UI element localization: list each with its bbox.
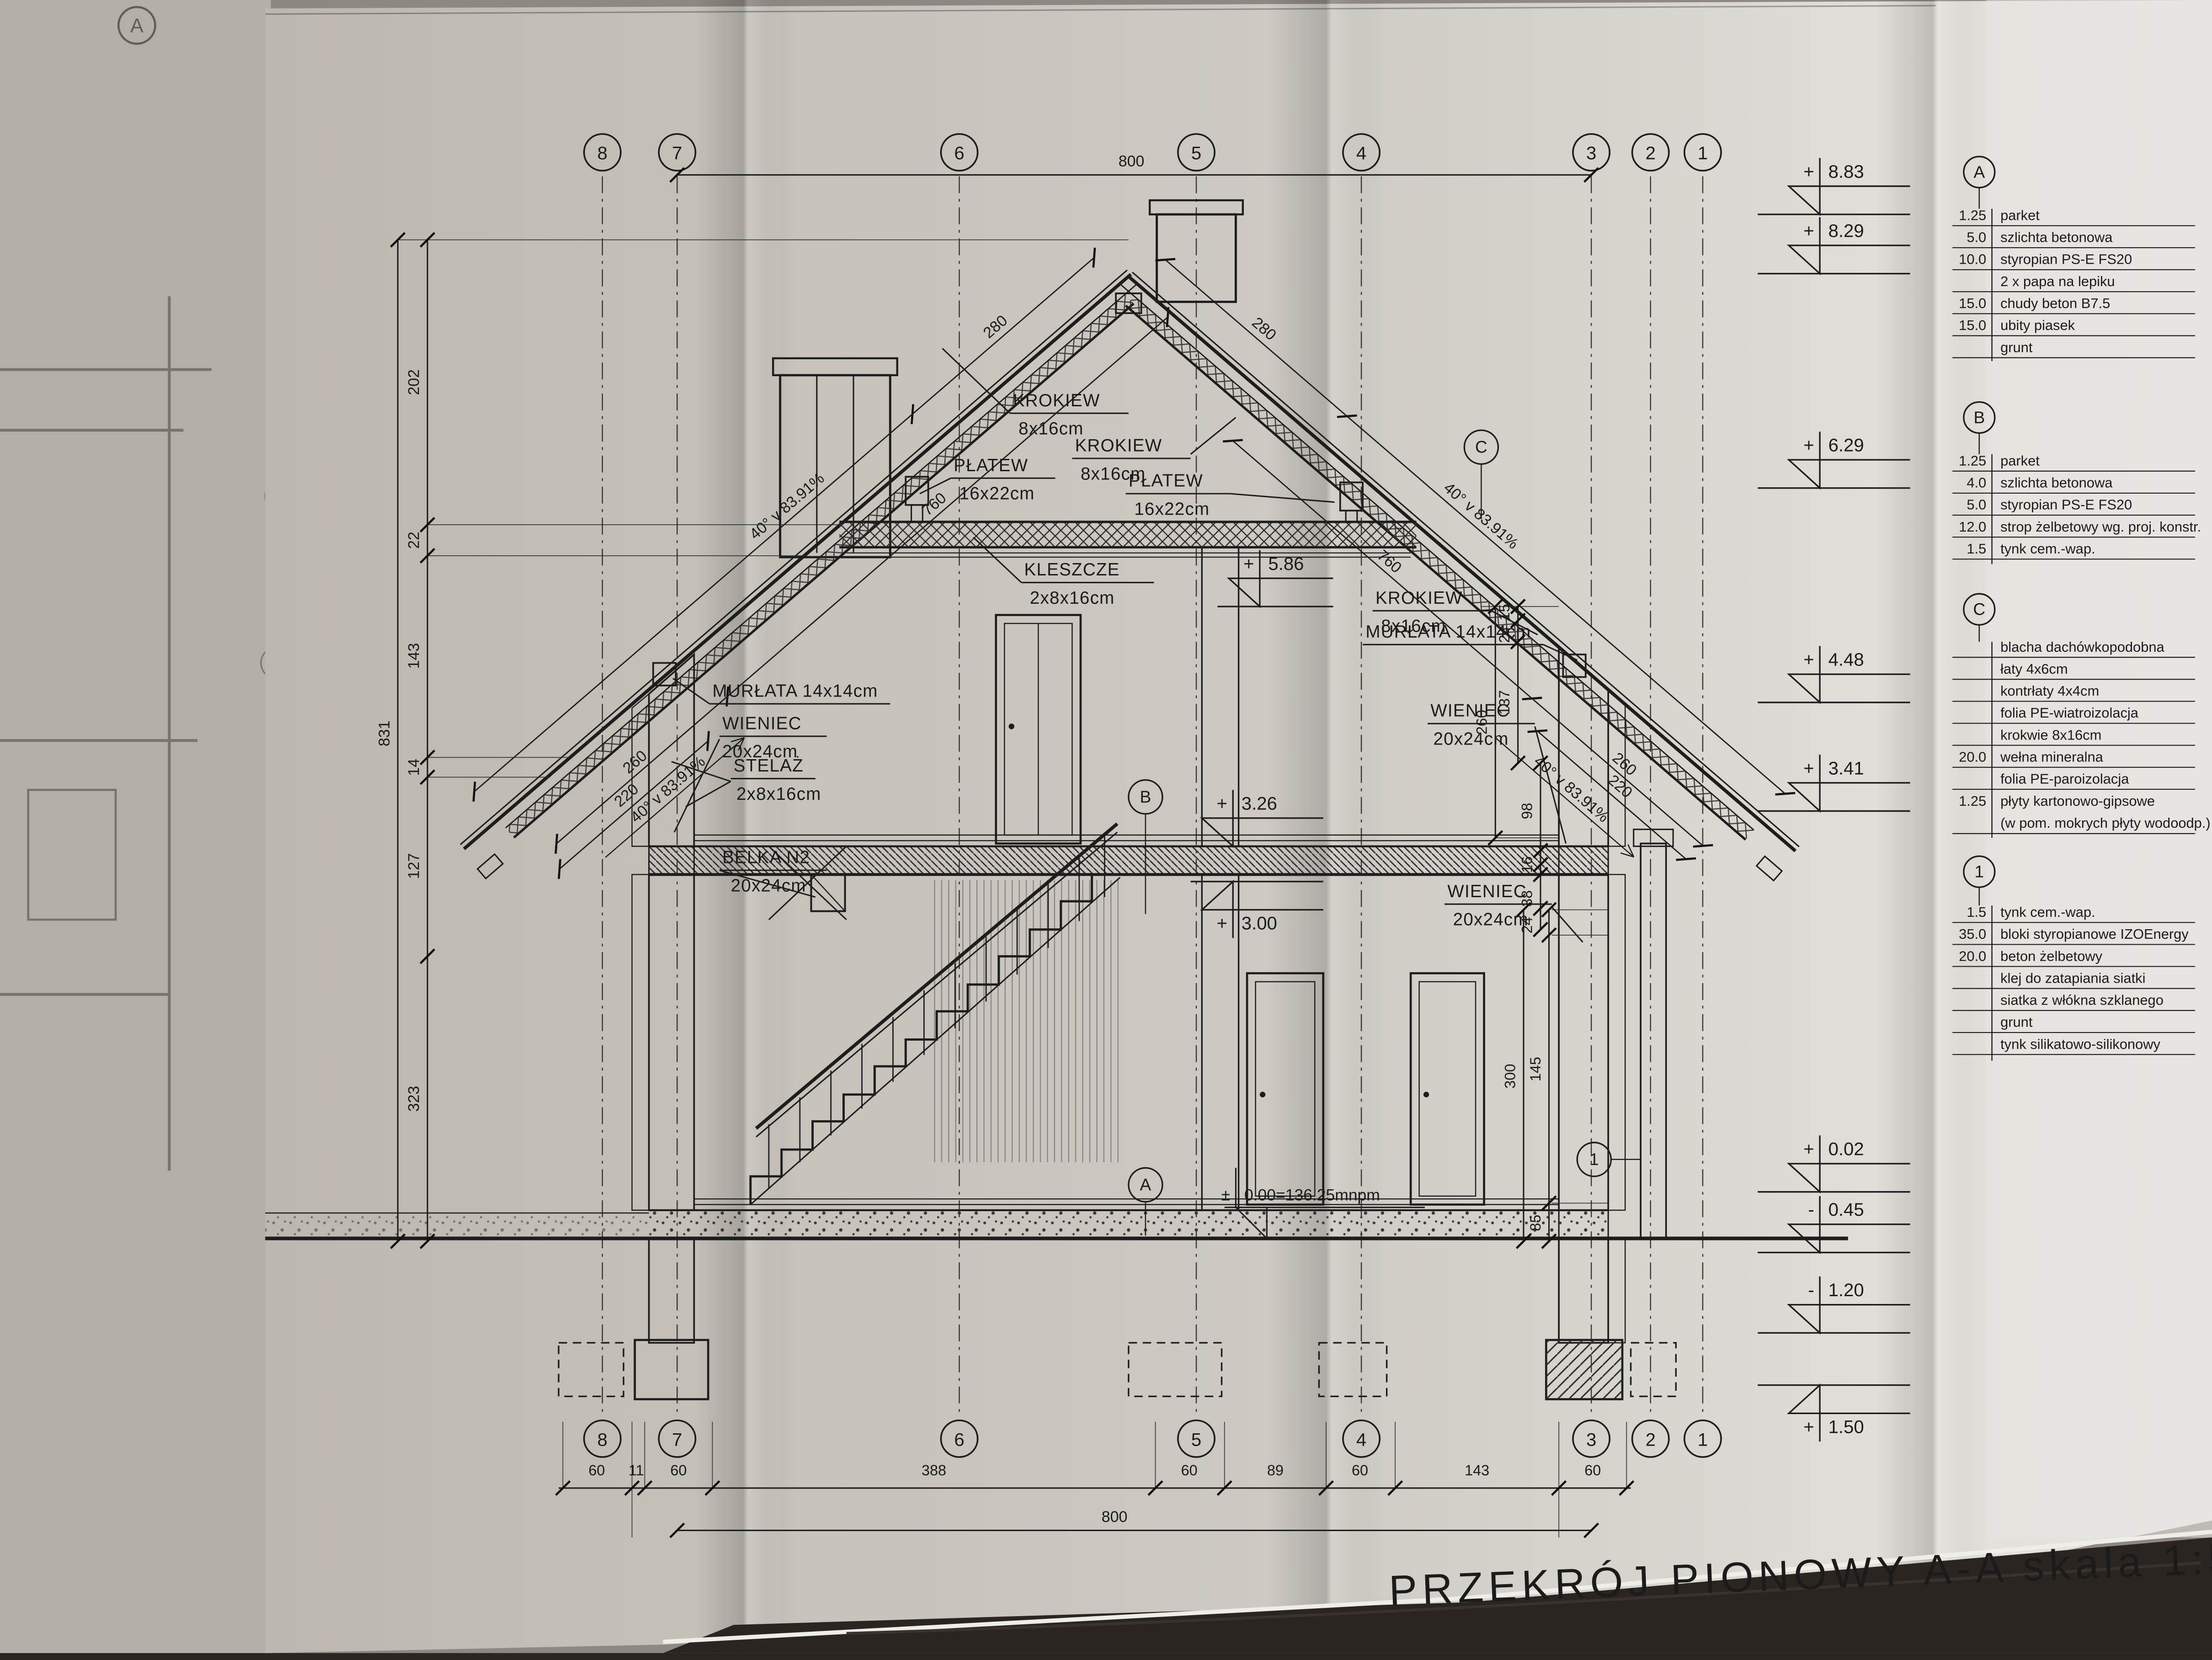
svg-text:89: 89 <box>1267 1462 1284 1479</box>
svg-text:15.0: 15.0 <box>1959 317 1986 333</box>
svg-text:3.00: 3.00 <box>1242 914 1277 934</box>
svg-text:3.26: 3.26 <box>1242 793 1277 814</box>
svg-text:KROKIEW: KROKIEW <box>1075 436 1162 456</box>
svg-text:15.0: 15.0 <box>1959 295 1986 311</box>
svg-text:strop żelbetowy wg. proj. kons: strop żelbetowy wg. proj. konstr. <box>2000 519 2201 535</box>
svg-text:1.25: 1.25 <box>1959 207 1986 223</box>
svg-text:16x22cm: 16x22cm <box>1134 499 1210 519</box>
svg-text:388: 388 <box>922 1462 946 1479</box>
svg-text:35.0: 35.0 <box>1959 926 1986 942</box>
svg-text:5.0: 5.0 <box>1967 497 1986 513</box>
svg-text:-: - <box>1808 1200 1814 1220</box>
svg-text:kontrłaty 4x4cm: kontrłaty 4x4cm <box>2000 683 2099 699</box>
svg-text:folia PE-paroizolacja: folia PE-paroizolacja <box>2000 771 2129 787</box>
svg-text:60: 60 <box>1352 1462 1368 1479</box>
svg-text:260: 260 <box>1474 710 1490 734</box>
svg-text:4.0: 4.0 <box>1967 475 1986 491</box>
svg-text:145: 145 <box>1527 1057 1544 1081</box>
svg-text:parket: parket <box>2000 452 2040 468</box>
axis-top-3: 3 <box>1586 144 1596 164</box>
svg-text:300: 300 <box>1502 1064 1518 1089</box>
svg-text:16: 16 <box>1519 857 1535 873</box>
svg-text:beton żelbetowy: beton żelbetowy <box>2000 948 2103 964</box>
svg-text:grunt: grunt <box>2000 339 2033 355</box>
axis-bot-2: 2 <box>1646 1430 1656 1450</box>
svg-text:styropian PS-E FS20: styropian PS-E FS20 <box>2000 497 2132 513</box>
svg-text:grunt: grunt <box>2000 1014 2033 1030</box>
underlying-sheet: A <box>0 0 302 1653</box>
svg-text:24: 24 <box>1496 627 1513 643</box>
axis-bot-6: 6 <box>954 1430 964 1450</box>
svg-text:0.45: 0.45 <box>1828 1200 1864 1220</box>
svg-text:+: + <box>1803 162 1814 182</box>
svg-text:16x22cm: 16x22cm <box>959 484 1035 503</box>
svg-text:1.5: 1.5 <box>1967 541 1986 557</box>
svg-text:60: 60 <box>670 1462 687 1479</box>
svg-text:2 x papa na lepiku: 2 x papa na lepiku <box>2000 273 2115 289</box>
svg-text:folia PE-wiatroizolacja: folia PE-wiatroizolacja <box>2000 705 2139 721</box>
svg-text:STELAŻ: STELAŻ <box>734 756 804 776</box>
axis-bot-4: 4 <box>1356 1430 1366 1450</box>
svg-text:chudy beton B7.5: chudy beton B7.5 <box>2000 295 2110 311</box>
svg-text:krokwie 8x16cm: krokwie 8x16cm <box>2000 727 2101 743</box>
axis-top-4: 4 <box>1356 144 1366 164</box>
svg-text:60: 60 <box>1584 1462 1601 1479</box>
svg-text:PŁATEW: PŁATEW <box>1129 471 1203 491</box>
svg-text:1.25: 1.25 <box>1959 793 1986 809</box>
svg-text:±: ± <box>1221 1186 1230 1204</box>
svg-text:60: 60 <box>1181 1462 1198 1479</box>
axis-top-5: 5 <box>1191 144 1201 164</box>
svg-text:WIENIEC: WIENIEC <box>722 714 802 734</box>
svg-text:6.29: 6.29 <box>1828 436 1864 456</box>
svg-text:98: 98 <box>1519 803 1535 819</box>
svg-text:KROKIEW: KROKIEW <box>1013 391 1100 410</box>
svg-text:+: + <box>1803 436 1814 456</box>
svg-text:1.50: 1.50 <box>1828 1417 1864 1437</box>
svg-text:8.29: 8.29 <box>1828 221 1864 241</box>
svg-text:szlichta betonowa: szlichta betonowa <box>2000 475 2113 491</box>
axis-bot-7: 7 <box>672 1430 682 1450</box>
svg-text:5.86: 5.86 <box>1268 554 1304 574</box>
svg-text:323: 323 <box>405 1086 423 1112</box>
photo-of-blueprint: A 8 7 6 5 4 3 2 1 8 7 6 5 4 3 2 1 <box>0 0 2212 1653</box>
svg-text:5.0: 5.0 <box>1967 229 1986 245</box>
svg-text:20x24cm: 20x24cm <box>1453 910 1529 929</box>
svg-text:siatka z włókna szklanego: siatka z włókna szklanego <box>2000 992 2164 1008</box>
bubble-b: B <box>1140 787 1151 806</box>
svg-text:+: + <box>1243 554 1254 574</box>
svg-text:+: + <box>1803 650 1814 670</box>
svg-text:831: 831 <box>376 720 393 746</box>
underlay-axis-letter: A <box>130 15 144 37</box>
svg-text:-: - <box>1808 1280 1814 1300</box>
svg-text:C: C <box>1973 600 1985 619</box>
svg-text:B: B <box>1973 408 1985 427</box>
svg-text:60: 60 <box>588 1462 605 1479</box>
svg-text:85: 85 <box>1527 1215 1544 1231</box>
svg-text:płyty kartonowo-gipsowe: płyty kartonowo-gipsowe <box>2000 793 2155 809</box>
axis-bot-8: 8 <box>597 1430 608 1450</box>
svg-text:8x16cm: 8x16cm <box>1018 419 1083 439</box>
svg-text:blacha dachówkopodobna: blacha dachówkopodobna <box>2000 639 2164 655</box>
svg-text:800: 800 <box>1102 1508 1128 1526</box>
svg-text:+: + <box>1216 914 1227 934</box>
svg-text:12.0: 12.0 <box>1959 519 1986 535</box>
blueprint-svg: A 8 7 6 5 4 3 2 1 8 7 6 5 4 3 2 1 <box>0 0 2212 1653</box>
svg-text:24: 24 <box>1519 917 1535 933</box>
svg-text:0.02: 0.02 <box>1828 1139 1864 1160</box>
svg-text:WIENIEC: WIENIEC <box>1447 882 1527 901</box>
svg-text:143: 143 <box>1465 1462 1489 1479</box>
axis-top-6: 6 <box>954 144 964 164</box>
svg-text:KLESZCZE: KLESZCZE <box>1024 560 1120 580</box>
svg-text:A: A <box>1973 162 1985 181</box>
svg-text:+: + <box>1803 758 1814 778</box>
svg-text:KROKIEW: KROKIEW <box>1375 588 1463 608</box>
svg-text:+: + <box>1803 1417 1814 1437</box>
svg-text:8.83: 8.83 <box>1828 162 1864 182</box>
svg-text:styropian PS-E FS20: styropian PS-E FS20 <box>2000 251 2132 267</box>
svg-text:0.00=136.25mnpm: 0.00=136.25mnpm <box>1244 1186 1380 1204</box>
bubble-a: A <box>1140 1175 1151 1194</box>
axis-top-7: 7 <box>672 144 682 164</box>
svg-text:klej do zatapiania siatki: klej do zatapiania siatki <box>2000 970 2145 986</box>
axis-bot-3: 3 <box>1586 1430 1596 1450</box>
svg-text:1.20: 1.20 <box>1828 1280 1864 1300</box>
svg-text:ubity piasek: ubity piasek <box>2000 317 2075 333</box>
axis-top-2: 2 <box>1646 144 1656 164</box>
svg-text:tynk silikatowo-silikonowy: tynk silikatowo-silikonowy <box>2000 1036 2160 1052</box>
svg-text:127: 127 <box>405 853 423 879</box>
axis-bot-5: 5 <box>1191 1430 1201 1450</box>
svg-text:202: 202 <box>405 369 423 395</box>
svg-text:+: + <box>1803 1139 1814 1160</box>
bubble-1: 1 <box>1589 1149 1599 1169</box>
svg-text:2x8x16cm: 2x8x16cm <box>1030 588 1115 608</box>
svg-text:1: 1 <box>1975 862 1984 881</box>
bubble-c: C <box>1475 437 1487 457</box>
svg-text:BELKA N2: BELKA N2 <box>722 848 810 867</box>
svg-text:wełna mineralna: wełna mineralna <box>2000 749 2104 765</box>
axis-top-1: 1 <box>1698 144 1708 164</box>
svg-text:38: 38 <box>1519 890 1535 907</box>
svg-text:szlichta betonowa: szlichta betonowa <box>2000 229 2113 245</box>
svg-text:tynk cem.-wap.: tynk cem.-wap. <box>2000 904 2095 920</box>
svg-text:tynk cem.-wap.: tynk cem.-wap. <box>2000 541 2095 557</box>
svg-text:łaty 4x6cm: łaty 4x6cm <box>2000 661 2068 677</box>
axis-top-8: 8 <box>597 144 608 164</box>
svg-text:(w pom. mokrych płyty wodoodp.: (w pom. mokrych płyty wodoodp.) <box>2000 815 2211 831</box>
svg-text:1.5: 1.5 <box>1967 904 1986 920</box>
svg-text:20.0: 20.0 <box>1959 749 1986 765</box>
svg-text:3.41: 3.41 <box>1828 758 1864 778</box>
svg-text:bloki styropianowe IZOEnergy: bloki styropianowe IZOEnergy <box>2000 926 2189 942</box>
svg-text:11: 11 <box>629 1462 644 1479</box>
paper-crease-left <box>694 0 793 1653</box>
svg-text:parket: parket <box>2000 207 2040 223</box>
svg-text:20.0: 20.0 <box>1959 948 1986 964</box>
svg-text:2x8x16cm: 2x8x16cm <box>736 784 821 804</box>
svg-text:+: + <box>1803 221 1814 241</box>
svg-text:137: 137 <box>1496 690 1513 715</box>
svg-text:22: 22 <box>405 532 423 549</box>
axis-bot-1: 1 <box>1698 1430 1708 1450</box>
svg-text:14: 14 <box>405 759 423 776</box>
svg-text:1.25: 1.25 <box>1959 452 1986 468</box>
svg-text:800: 800 <box>1119 153 1145 170</box>
svg-text:MURŁATA 14x14cm: MURŁATA 14x14cm <box>712 681 878 701</box>
svg-text:PŁATEW: PŁATEW <box>954 456 1028 475</box>
svg-text:143: 143 <box>405 643 423 669</box>
svg-text:20x24cm: 20x24cm <box>1433 729 1508 749</box>
svg-text:4.48: 4.48 <box>1828 650 1864 670</box>
svg-text:15: 15 <box>1496 604 1513 620</box>
svg-text:20x24cm: 20x24cm <box>731 876 806 895</box>
svg-text:+: + <box>1216 793 1227 814</box>
svg-text:10.0: 10.0 <box>1959 251 1986 267</box>
